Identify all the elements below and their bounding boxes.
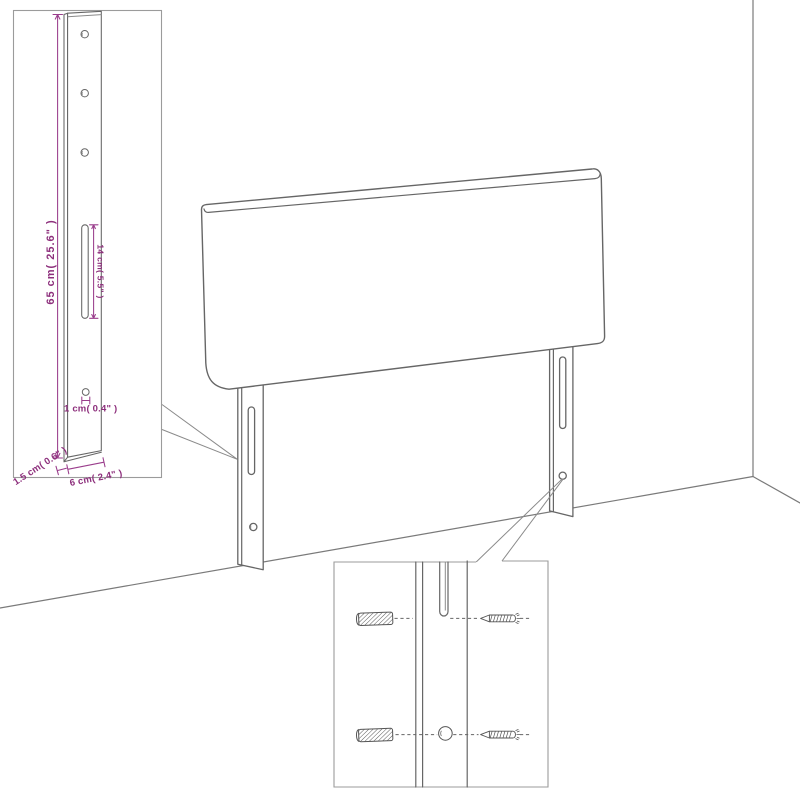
headboard-panel: [201, 169, 604, 389]
headboard-assembly-diagram: 65 cm( 25.6" ) 14 cm( 5.5" ) 1 cm( 0.4" …: [0, 0, 800, 800]
post-slot: [82, 225, 89, 318]
callout-lines: [162, 405, 563, 563]
post-side-face: [64, 13, 68, 462]
panel-face: [201, 169, 604, 389]
headboard-leg-right: [550, 335, 573, 517]
post-small-hole: [82, 389, 89, 396]
wall-plug-icon: [356, 728, 393, 742]
leg-right-hole: [559, 472, 566, 479]
dim-height-label: 65 cm( 25.6" ): [45, 219, 57, 304]
mounting-detail-frame: [334, 561, 548, 787]
inset-mounting-detail: [334, 561, 548, 787]
headboard-leg-left: [238, 380, 263, 570]
dim-slot-label: 14 cm( 5.5" ): [95, 244, 105, 298]
floor-line-right: [753, 477, 800, 504]
leg-right-slot: [560, 357, 566, 429]
diagram-page: 65 cm( 25.6" ) 14 cm( 5.5" ) 1 cm( 0.4" …: [0, 0, 800, 800]
wall-plug-icon: [356, 612, 393, 626]
leg-detail-post: [64, 11, 101, 461]
leg-detail-leader-lines: [162, 405, 237, 460]
inset-leg-detail: 65 cm( 25.6" ) 14 cm( 5.5" ) 1 cm( 0.4" …: [11, 11, 161, 489]
leg-left-slot: [248, 407, 254, 475]
dim-hole-label: 1 cm( 0.4" ): [64, 404, 117, 415]
